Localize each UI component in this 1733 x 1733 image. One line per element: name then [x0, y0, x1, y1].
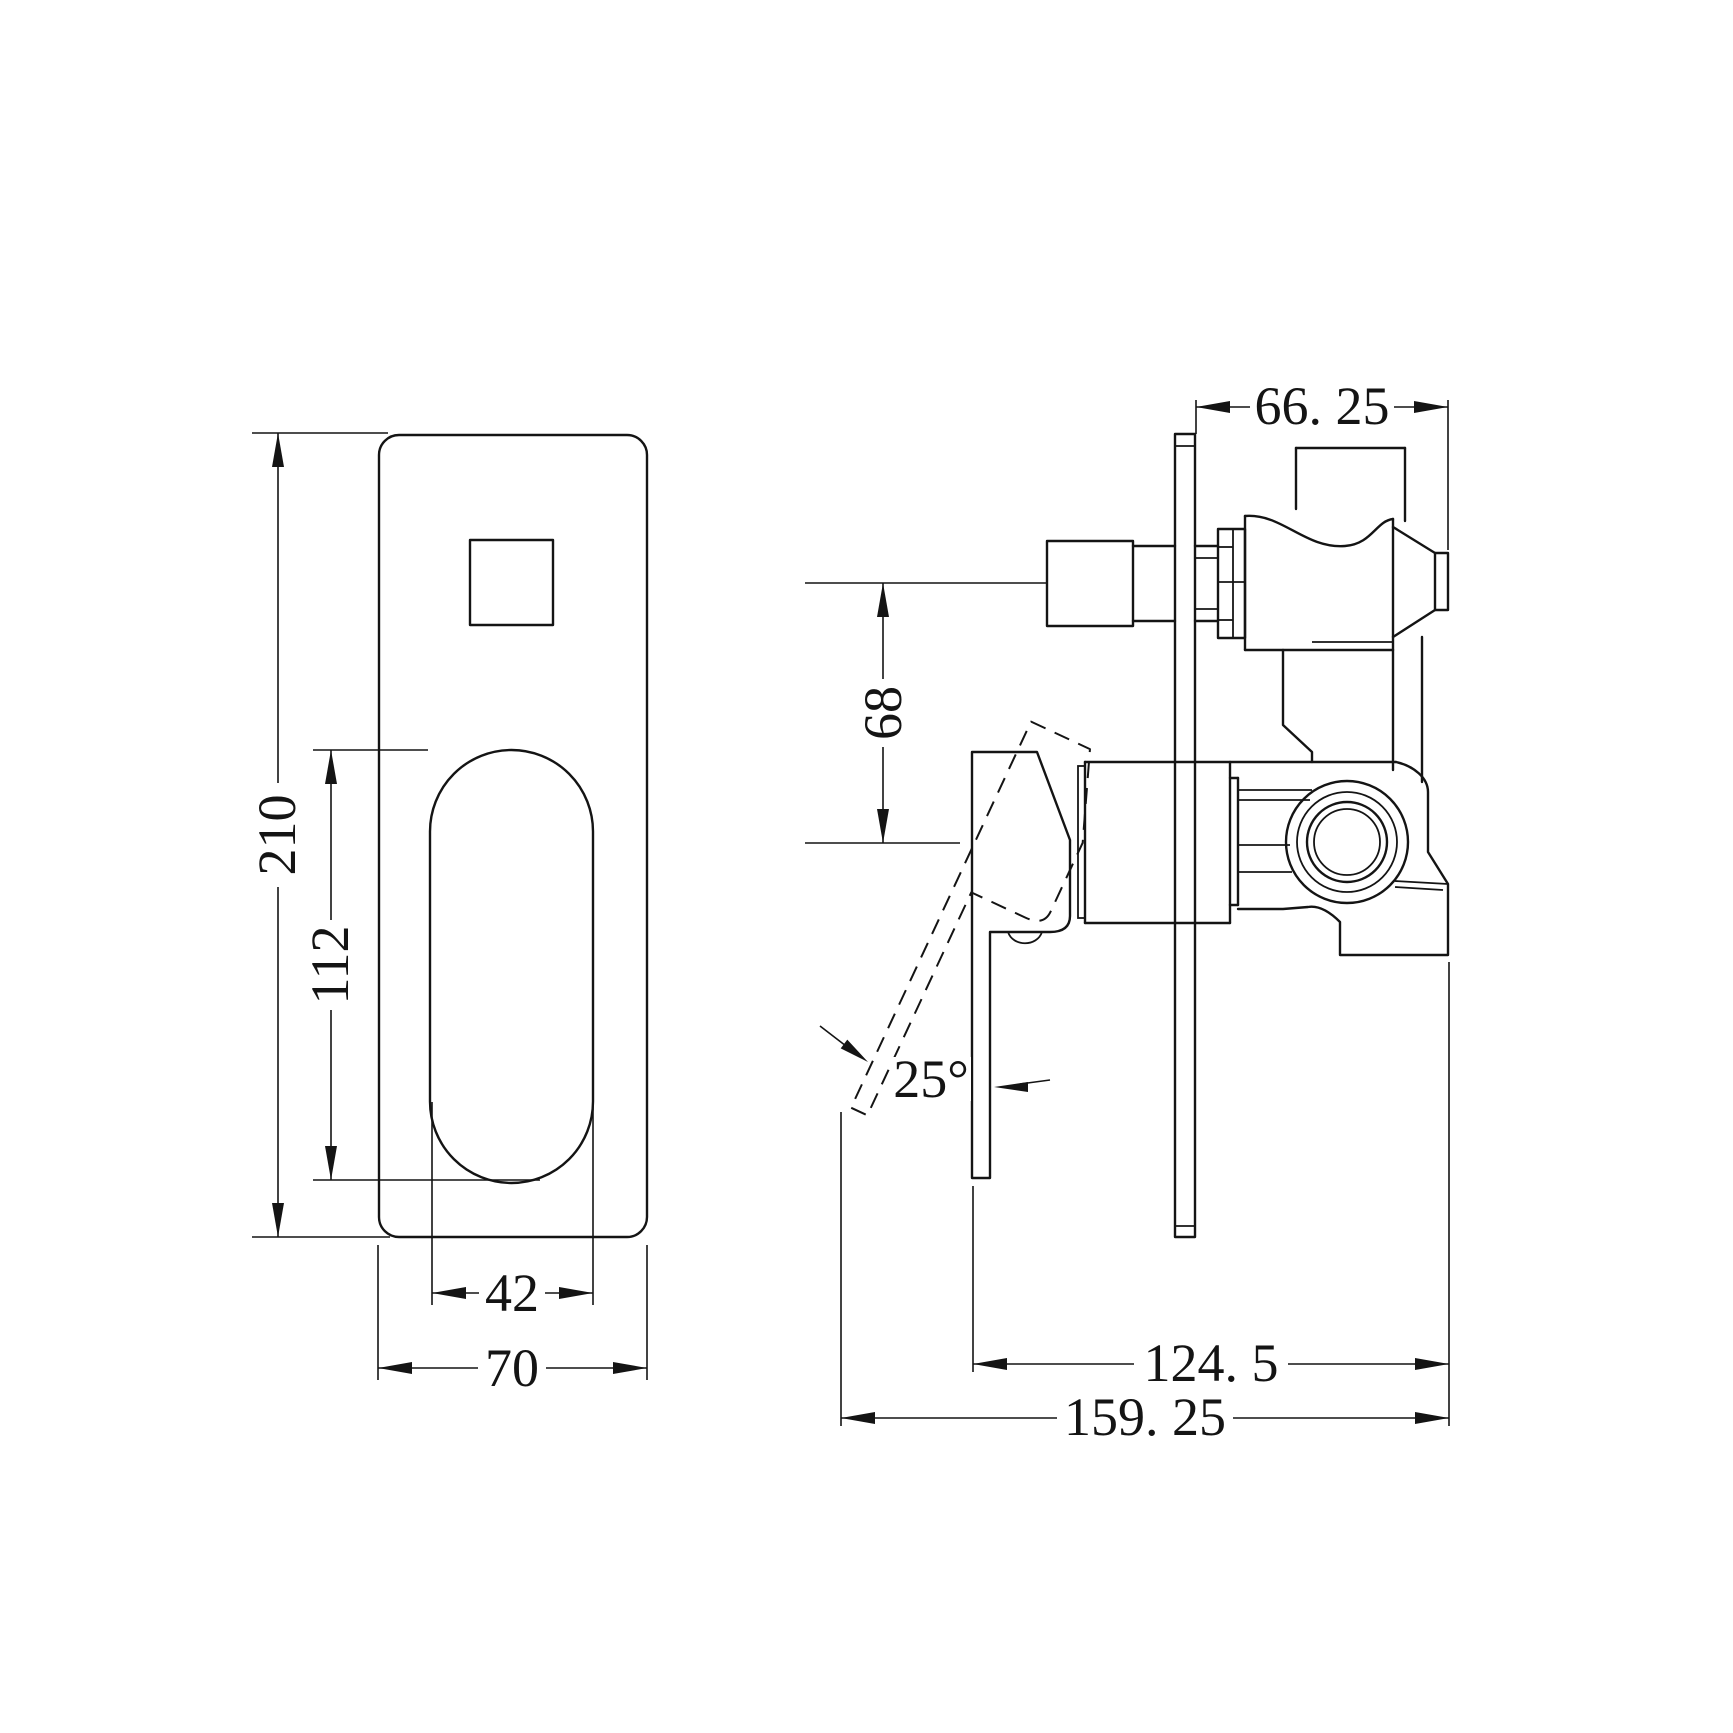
technical-drawing-canvas: 210 112 42 [0, 0, 1733, 1733]
dim-cutout-width: 42 [432, 1102, 593, 1323]
arrowhead-icon [325, 1146, 337, 1180]
dim-text-valve-front-depth: 66. 25 [1255, 376, 1390, 436]
arrowhead-icon [994, 1082, 1028, 1092]
arrowhead-icon [1415, 1412, 1449, 1424]
side-outlet-boss [1238, 762, 1448, 955]
arrowhead-icon [1415, 1358, 1449, 1370]
outlet-port-outer-ring [1286, 781, 1408, 903]
dim-total-depth: 159. 25 [841, 1112, 1449, 1447]
dim-port-center-spacing: 68 [805, 583, 1047, 843]
arrowhead-icon [378, 1362, 412, 1374]
side-view: 66. 25 68 25° [805, 376, 1449, 1447]
arrowhead-icon [1196, 401, 1230, 413]
arrowhead-icon [877, 809, 889, 843]
arrowhead-icon [877, 583, 889, 617]
dim-text-total-depth: 159. 25 [1064, 1387, 1226, 1447]
arrowhead-icon [1414, 401, 1448, 413]
outlet-port-bore [1314, 809, 1380, 875]
outlet-port-ring [1297, 792, 1397, 892]
side-cartridge-housing [1078, 762, 1396, 923]
dim-handle-body-depth: 124. 5 [973, 962, 1449, 1426]
dim-text-cutout-width: 42 [485, 1263, 539, 1323]
arrowhead-icon [272, 433, 284, 467]
front-plate-outline [379, 435, 647, 1237]
dim-text-port-center-spacing: 68 [853, 686, 913, 740]
side-handle-solid [972, 752, 1070, 1178]
arrowhead-icon [272, 1203, 284, 1237]
dim-text-plate-width: 70 [485, 1338, 539, 1398]
technical-drawing-page: 210 112 42 [0, 0, 1733, 1733]
annotation-handle-swing-angle: 25° [820, 1026, 1050, 1109]
arrowhead-icon [325, 750, 337, 784]
front-view: 210 112 42 [247, 433, 647, 1398]
front-lever-cutout [430, 750, 593, 1183]
side-inlet-pipe [1047, 541, 1175, 626]
dim-text-handle-swing-angle: 25° [893, 1049, 969, 1109]
side-check-valve-body [1245, 448, 1448, 782]
arrowhead-icon [841, 1040, 868, 1062]
handle-set-screw [1008, 932, 1042, 943]
side-wall-plate [1175, 434, 1195, 1237]
outlet-port-ring [1307, 802, 1387, 882]
dim-valve-front-depth: 66. 25 [1196, 376, 1448, 550]
side-union-nut [1195, 529, 1245, 638]
arrowhead-icon [432, 1287, 466, 1299]
arrowhead-icon [973, 1358, 1007, 1370]
dim-text-cutout-height: 112 [300, 926, 360, 1005]
arrowhead-icon [841, 1412, 875, 1424]
dim-text-handle-body-depth: 124. 5 [1144, 1333, 1279, 1393]
dim-text-plate-height: 210 [247, 795, 307, 876]
arrowhead-icon [559, 1287, 593, 1299]
dim-plate-height: 210 [247, 433, 390, 1237]
arrowhead-icon [613, 1362, 647, 1374]
dim-cutout-height: 112 [300, 750, 540, 1180]
front-diverter-button [470, 540, 553, 625]
